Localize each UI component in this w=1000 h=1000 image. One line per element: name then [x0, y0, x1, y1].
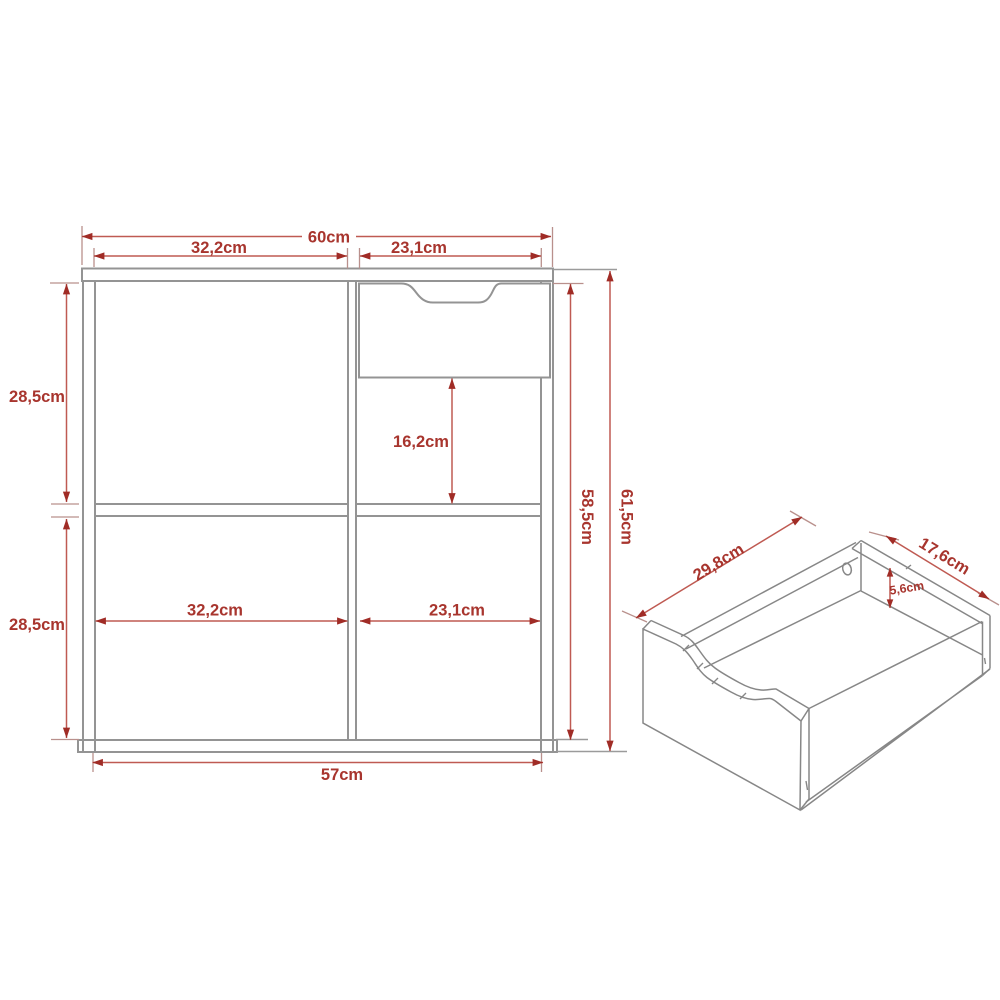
svg-text:28,5cm: 28,5cm	[9, 388, 65, 406]
svg-text:57cm: 57cm	[321, 766, 363, 784]
svg-text:32,2cm: 32,2cm	[191, 239, 247, 257]
svg-text:58,5cm: 58,5cm	[578, 489, 596, 545]
svg-text:28,5cm: 28,5cm	[9, 616, 65, 634]
svg-text:23,1cm: 23,1cm	[429, 602, 485, 620]
svg-text:16,2cm: 16,2cm	[393, 433, 449, 451]
svg-text:32,2cm: 32,2cm	[187, 602, 243, 620]
svg-text:60cm: 60cm	[308, 229, 350, 247]
svg-text:61,5cm: 61,5cm	[618, 489, 636, 545]
svg-text:23,1cm: 23,1cm	[391, 239, 447, 257]
